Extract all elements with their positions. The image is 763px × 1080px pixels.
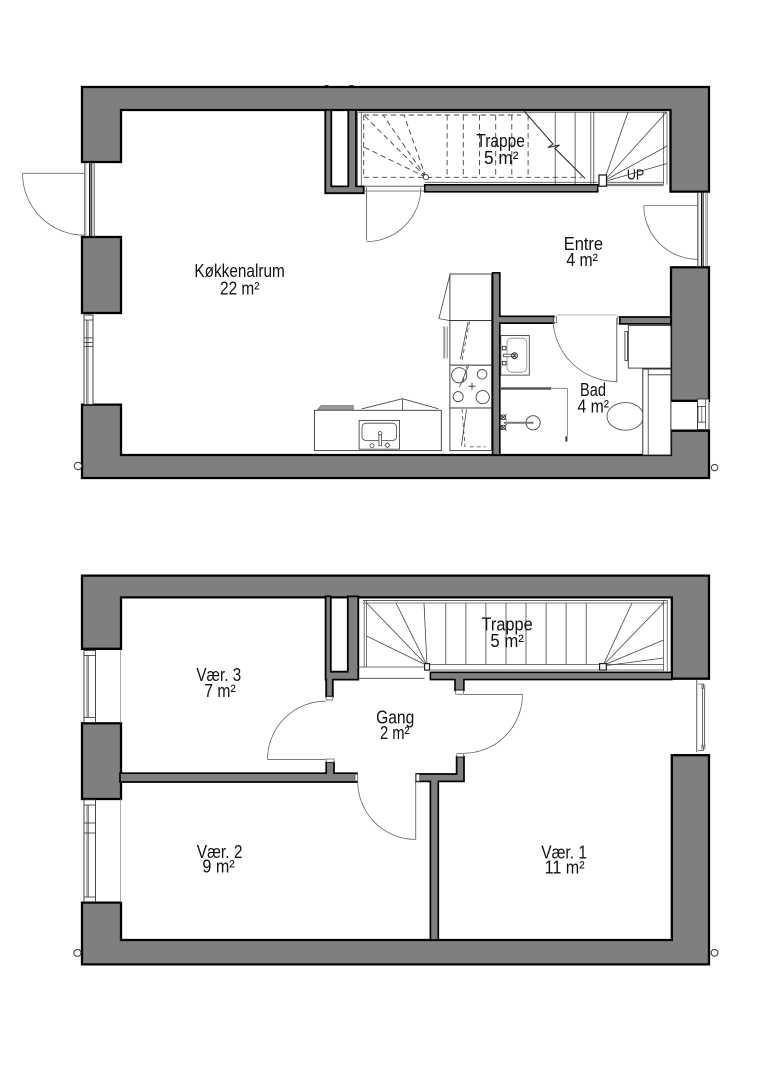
svg-text:4 m²: 4 m² <box>577 397 609 417</box>
svg-text:UP: UP <box>627 168 644 184</box>
svg-text:2 m²: 2 m² <box>380 723 410 743</box>
svg-text:9 m²: 9 m² <box>202 857 234 877</box>
svg-text:11 m²: 11 m² <box>545 858 585 878</box>
svg-text:5 m²: 5 m² <box>484 148 519 168</box>
svg-text:22 m²: 22 m² <box>220 278 259 298</box>
svg-text:7 m²: 7 m² <box>204 681 235 701</box>
svg-text:5 m²: 5 m² <box>490 631 523 651</box>
svg-text:4 m²: 4 m² <box>566 250 598 270</box>
